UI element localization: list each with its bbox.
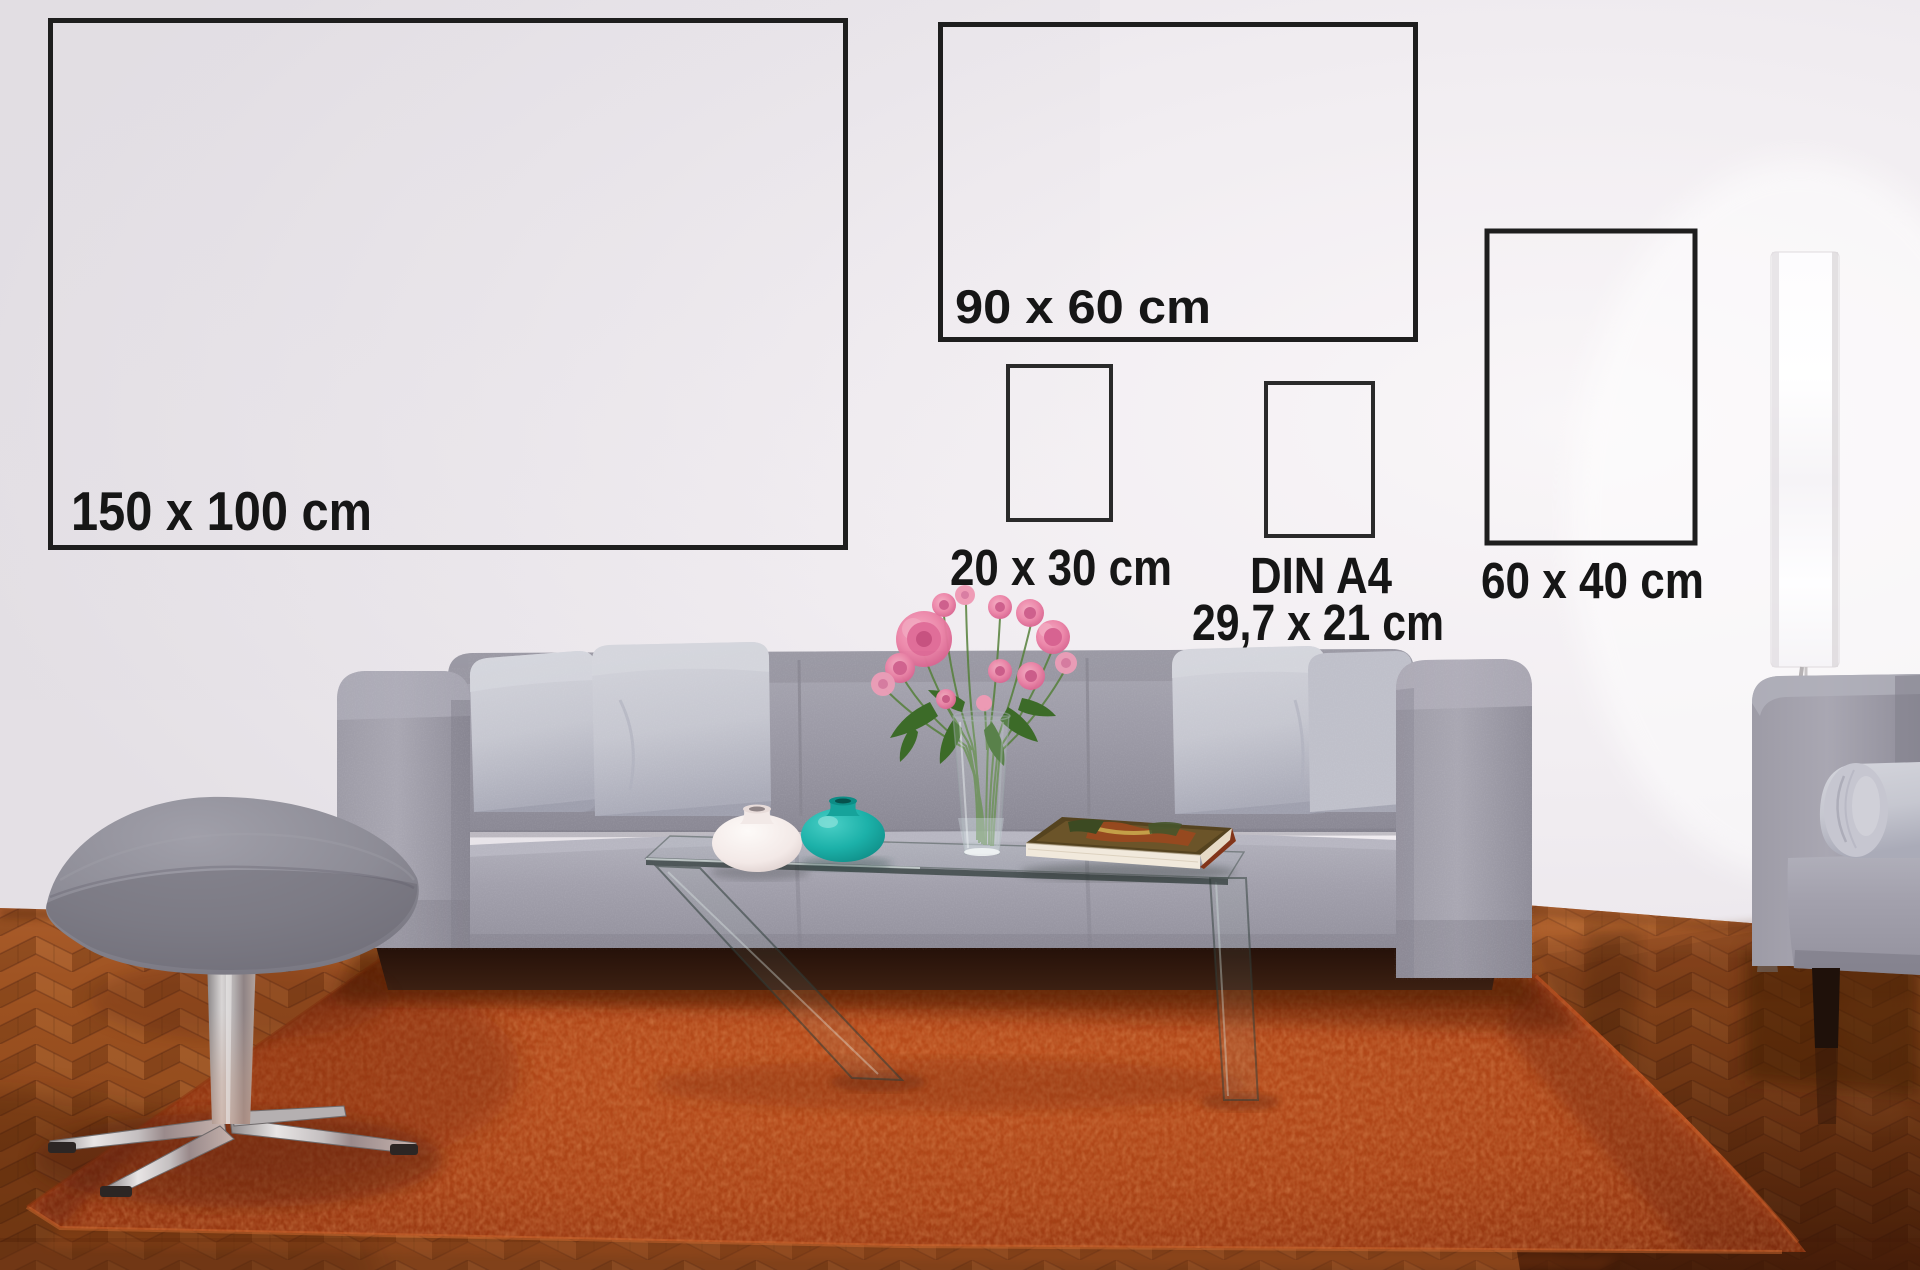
svg-text:29,7 x 21 cm: 29,7 x 21 cm [1192,594,1444,651]
svg-text:20 x 30 cm: 20 x 30 cm [950,539,1172,596]
svg-text:150 x 100 cm: 150 x 100 cm [71,480,372,542]
svg-text:90 x 60 cm: 90 x 60 cm [955,280,1211,333]
svg-text:60 x 40 cm: 60 x 40 cm [1481,552,1704,609]
